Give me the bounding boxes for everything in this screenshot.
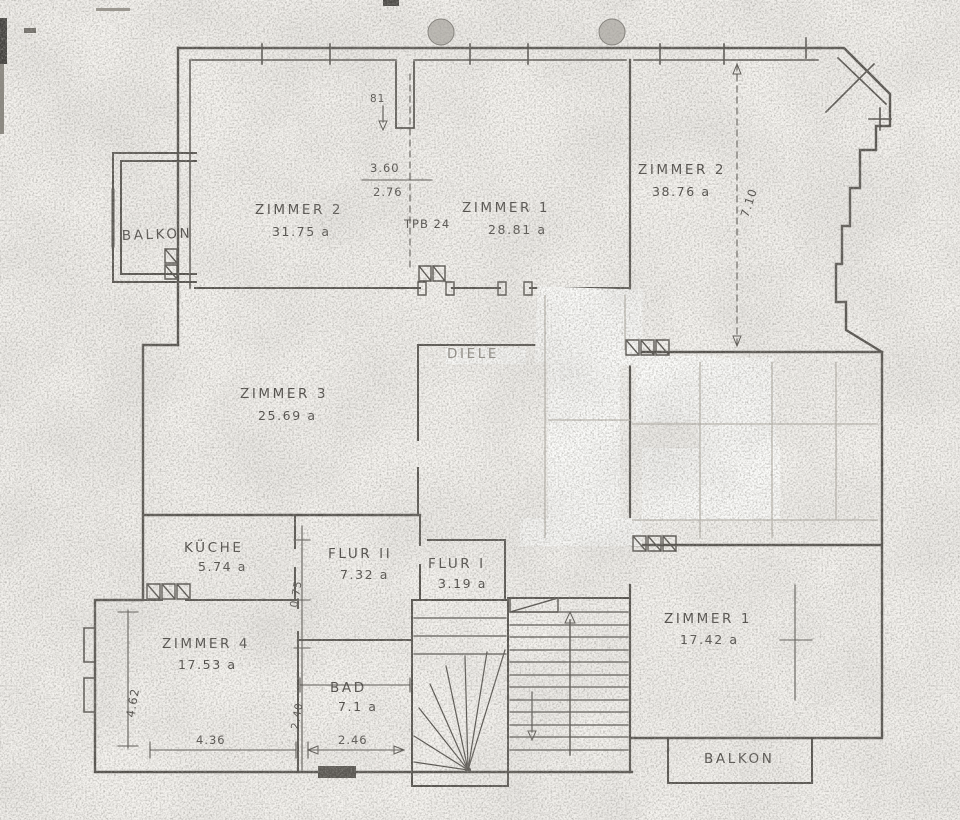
floor-plan-drawing: BALKON ZIMMER 2 31.75 a ZIMMER 1 28.81 a… — [0, 0, 960, 820]
scanned-floor-plan: BALKON ZIMMER 2 31.75 a ZIMMER 1 28.81 a… — [0, 0, 960, 820]
scan-grain-layer — [0, 0, 960, 820]
